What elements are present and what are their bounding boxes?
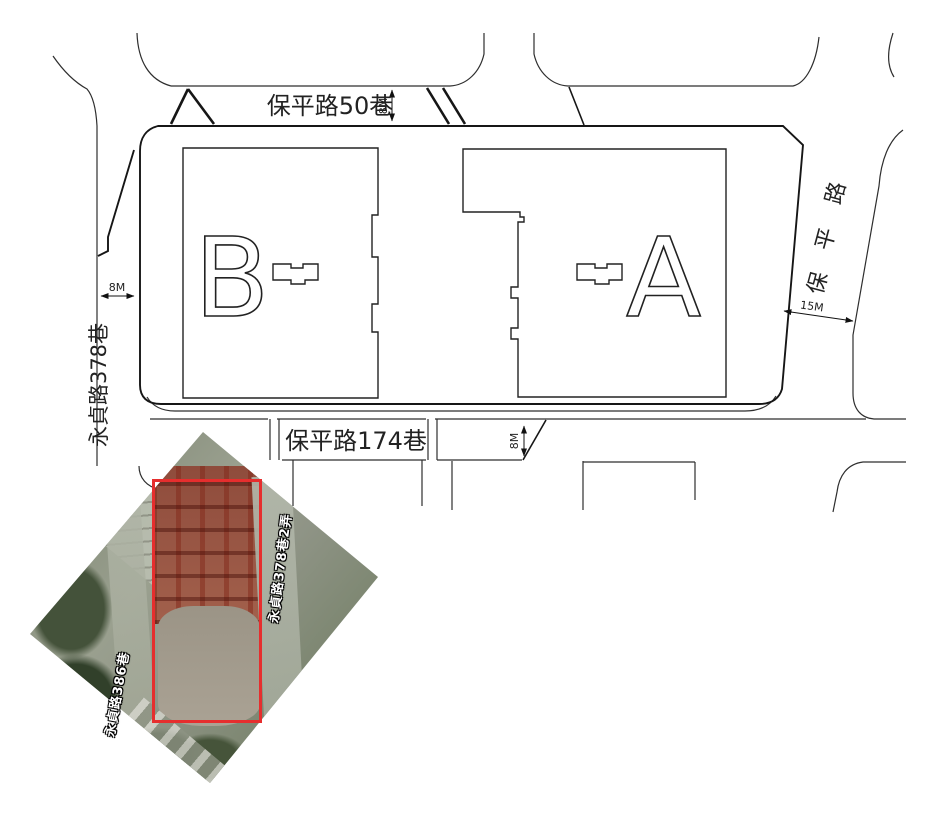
dim-right-15m: 15M [799, 298, 824, 314]
road-label-right-char1: 路 [822, 179, 852, 207]
dim-left-8m: 8M [109, 281, 126, 294]
road-label-left: 永貞路378巷 [87, 323, 111, 447]
building-a-label: A [626, 214, 701, 342]
building-b-label: B [194, 214, 269, 342]
site-plan-page: { "plan": { "roads": { "top": { "label":… [0, 0, 934, 809]
road-label-right-char2: 平 [812, 225, 842, 253]
site-highlight-rectangle [152, 479, 262, 723]
dim-bottom-8m: 8M [508, 433, 521, 450]
road-label-bottom: 保平路174巷 [285, 427, 427, 455]
road-label-right-char3: 保 [804, 269, 834, 297]
road-label-top: 保平路50巷 [267, 92, 394, 120]
